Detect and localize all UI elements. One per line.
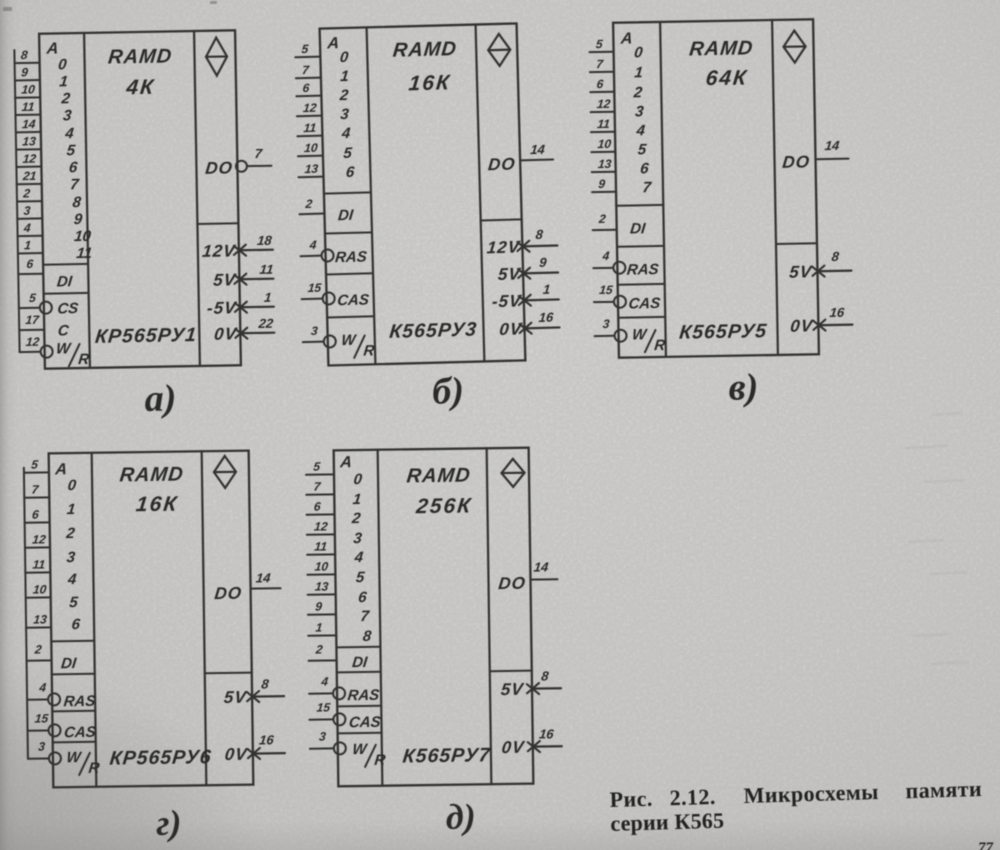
svg-text:11: 11: [259, 262, 274, 277]
svg-text:R: R: [77, 351, 90, 368]
svg-text:11: 11: [32, 557, 46, 571]
svg-text:13: 13: [304, 162, 319, 176]
svg-text:15: 15: [34, 711, 49, 725]
svg-text:16: 16: [829, 305, 846, 320]
svg-text:К565РУ5: К565РУ5: [678, 320, 768, 343]
svg-text:14: 14: [533, 559, 550, 574]
svg-text:RAS: RAS: [626, 261, 659, 279]
svg-text:К565РУ3: К565РУ3: [388, 319, 478, 343]
svg-text:DI: DI: [60, 655, 78, 672]
svg-text:12: 12: [25, 335, 40, 349]
svg-text:б): б): [432, 370, 465, 413]
svg-text:16: 16: [538, 310, 555, 325]
svg-text:RAS: RAS: [63, 693, 97, 710]
svg-text:10: 10: [304, 141, 319, 155]
svg-text:10: 10: [597, 137, 612, 151]
svg-text:77: 77: [978, 840, 994, 850]
svg-text:14: 14: [255, 570, 272, 585]
svg-text:1: 1: [340, 68, 350, 85]
svg-text:11: 11: [76, 245, 93, 262]
svg-text:12: 12: [313, 520, 328, 534]
svg-text:12: 12: [303, 101, 318, 115]
svg-text:16К: 16К: [135, 493, 180, 517]
svg-text:A: A: [619, 29, 633, 47]
svg-text:15: 15: [307, 281, 322, 295]
svg-text:серии К565: серии К565: [610, 808, 725, 836]
svg-text:RAMD: RAMD: [107, 45, 173, 68]
svg-text:11: 11: [303, 121, 317, 135]
svg-text:0V: 0V: [213, 324, 238, 343]
svg-text:16: 16: [258, 732, 275, 747]
svg-text:14: 14: [530, 142, 547, 157]
svg-text:12V: 12V: [201, 241, 237, 261]
svg-text:RAMD: RAMD: [406, 465, 472, 488]
svg-text:5V: 5V: [500, 680, 525, 699]
svg-text:22: 22: [257, 316, 275, 331]
svg-text:в): в): [728, 366, 758, 409]
svg-text:14: 14: [21, 117, 36, 131]
svg-text:КР565РУ6: КР565РУ6: [109, 746, 213, 769]
svg-text:RAMD: RAMD: [392, 38, 458, 62]
svg-text:DI: DI: [337, 207, 354, 224]
svg-text:д): д): [446, 796, 476, 836]
svg-text:13: 13: [597, 157, 612, 171]
svg-text:21: 21: [21, 169, 37, 183]
svg-text:RAMD: RAMD: [688, 37, 754, 60]
svg-text:11: 11: [314, 540, 328, 554]
svg-text:0V: 0V: [499, 319, 524, 339]
svg-text:R: R: [374, 752, 387, 769]
svg-text:10: 10: [21, 82, 36, 96]
svg-text:5V: 5V: [212, 270, 237, 289]
svg-text:4К: 4К: [124, 76, 156, 99]
svg-text:г): г): [156, 803, 182, 843]
svg-text:а): а): [144, 377, 176, 420]
svg-text:DO: DO: [214, 584, 244, 603]
svg-text:R: R: [363, 342, 376, 359]
svg-text:14: 14: [824, 138, 841, 153]
svg-text:0V: 0V: [224, 745, 249, 764]
svg-text:13: 13: [33, 612, 48, 626]
svg-text:CS: CS: [57, 300, 80, 317]
svg-text:К565РУ7: К565РУ7: [402, 744, 492, 767]
svg-text:10: 10: [73, 228, 92, 245]
svg-text:11: 11: [597, 117, 611, 131]
svg-text:11: 11: [21, 100, 35, 114]
svg-text:16К: 16К: [408, 71, 452, 95]
svg-text:КР565РУ1: КР565РУ1: [94, 324, 198, 348]
svg-text:12: 12: [22, 152, 37, 166]
svg-text:DI: DI: [351, 654, 369, 671]
svg-text:13: 13: [314, 579, 329, 593]
svg-text:A: A: [326, 34, 340, 52]
svg-text:R: R: [653, 337, 666, 354]
svg-text:-5V: -5V: [491, 291, 523, 311]
svg-text:A: A: [45, 39, 59, 57]
svg-text:5V: 5V: [497, 264, 522, 284]
svg-text:1: 1: [542, 282, 551, 297]
svg-text:256К: 256К: [414, 495, 473, 519]
svg-text:64К: 64К: [705, 66, 750, 90]
svg-text:CAS: CAS: [63, 724, 97, 741]
svg-text:RAS: RAS: [334, 248, 367, 266]
svg-text:10: 10: [32, 582, 47, 596]
svg-text:DO: DO: [487, 155, 516, 175]
svg-text:CAS: CAS: [628, 295, 661, 313]
svg-text:DO: DO: [204, 158, 233, 177]
svg-text:10: 10: [314, 559, 329, 573]
svg-text:15: 15: [599, 283, 614, 297]
svg-text:A: A: [54, 460, 68, 478]
svg-text:15: 15: [316, 700, 331, 714]
svg-text:CAS: CAS: [336, 291, 369, 309]
svg-text:16: 16: [538, 726, 555, 741]
svg-text:12V: 12V: [486, 237, 522, 257]
svg-text:-5V: -5V: [206, 298, 238, 317]
svg-text:DI: DI: [56, 273, 74, 290]
svg-text:5V: 5V: [788, 262, 813, 281]
svg-text:18: 18: [256, 233, 273, 248]
svg-text:13: 13: [22, 134, 37, 148]
svg-text:DO: DO: [782, 152, 811, 171]
svg-text:CAS: CAS: [348, 714, 382, 731]
svg-text:12: 12: [596, 97, 611, 111]
svg-text:5V: 5V: [223, 688, 248, 707]
svg-text:12: 12: [32, 532, 47, 546]
svg-text:0V: 0V: [501, 738, 526, 757]
svg-text:DI: DI: [629, 220, 647, 237]
svg-text:RAMD: RAMD: [119, 464, 185, 487]
svg-text:0V: 0V: [789, 316, 814, 335]
svg-text:RAS: RAS: [347, 687, 381, 704]
svg-text:A: A: [338, 453, 352, 471]
svg-text:R: R: [88, 760, 101, 777]
svg-text:DO: DO: [497, 574, 527, 593]
